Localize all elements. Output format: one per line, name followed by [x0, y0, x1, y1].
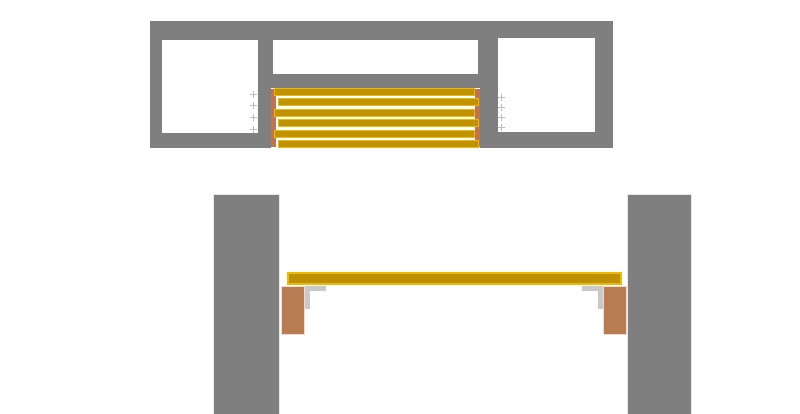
wood-slat [278, 98, 479, 106]
support-block-left [281, 286, 305, 335]
bracket-flange-vertical [305, 286, 310, 309]
deck-board [287, 272, 622, 285]
wood-slat [278, 119, 479, 127]
bracket-flange-vertical [598, 286, 603, 309]
support-block-right [603, 286, 627, 335]
screw-cross-icon [250, 91, 257, 98]
screw-cross-icon [498, 114, 505, 121]
screw-cross-icon [498, 124, 505, 131]
center-opening [273, 40, 478, 74]
wood-slat [278, 140, 479, 148]
left-opening [162, 40, 258, 133]
screw-cross-icon [250, 102, 257, 109]
end-batten-left [271, 89, 276, 147]
screw-cross-icon [498, 94, 505, 101]
wood-slat [274, 130, 475, 138]
left-pillar [213, 194, 280, 414]
slat-opening [271, 88, 480, 148]
right-pillar [627, 194, 692, 414]
wood-slat [274, 109, 475, 117]
screw-cross-icon [498, 104, 505, 111]
screw-cross-icon [250, 126, 257, 133]
woodworking-plan [0, 0, 800, 414]
screw-cross-icon [250, 114, 257, 121]
wood-slat [274, 88, 475, 96]
right-opening [498, 38, 595, 132]
